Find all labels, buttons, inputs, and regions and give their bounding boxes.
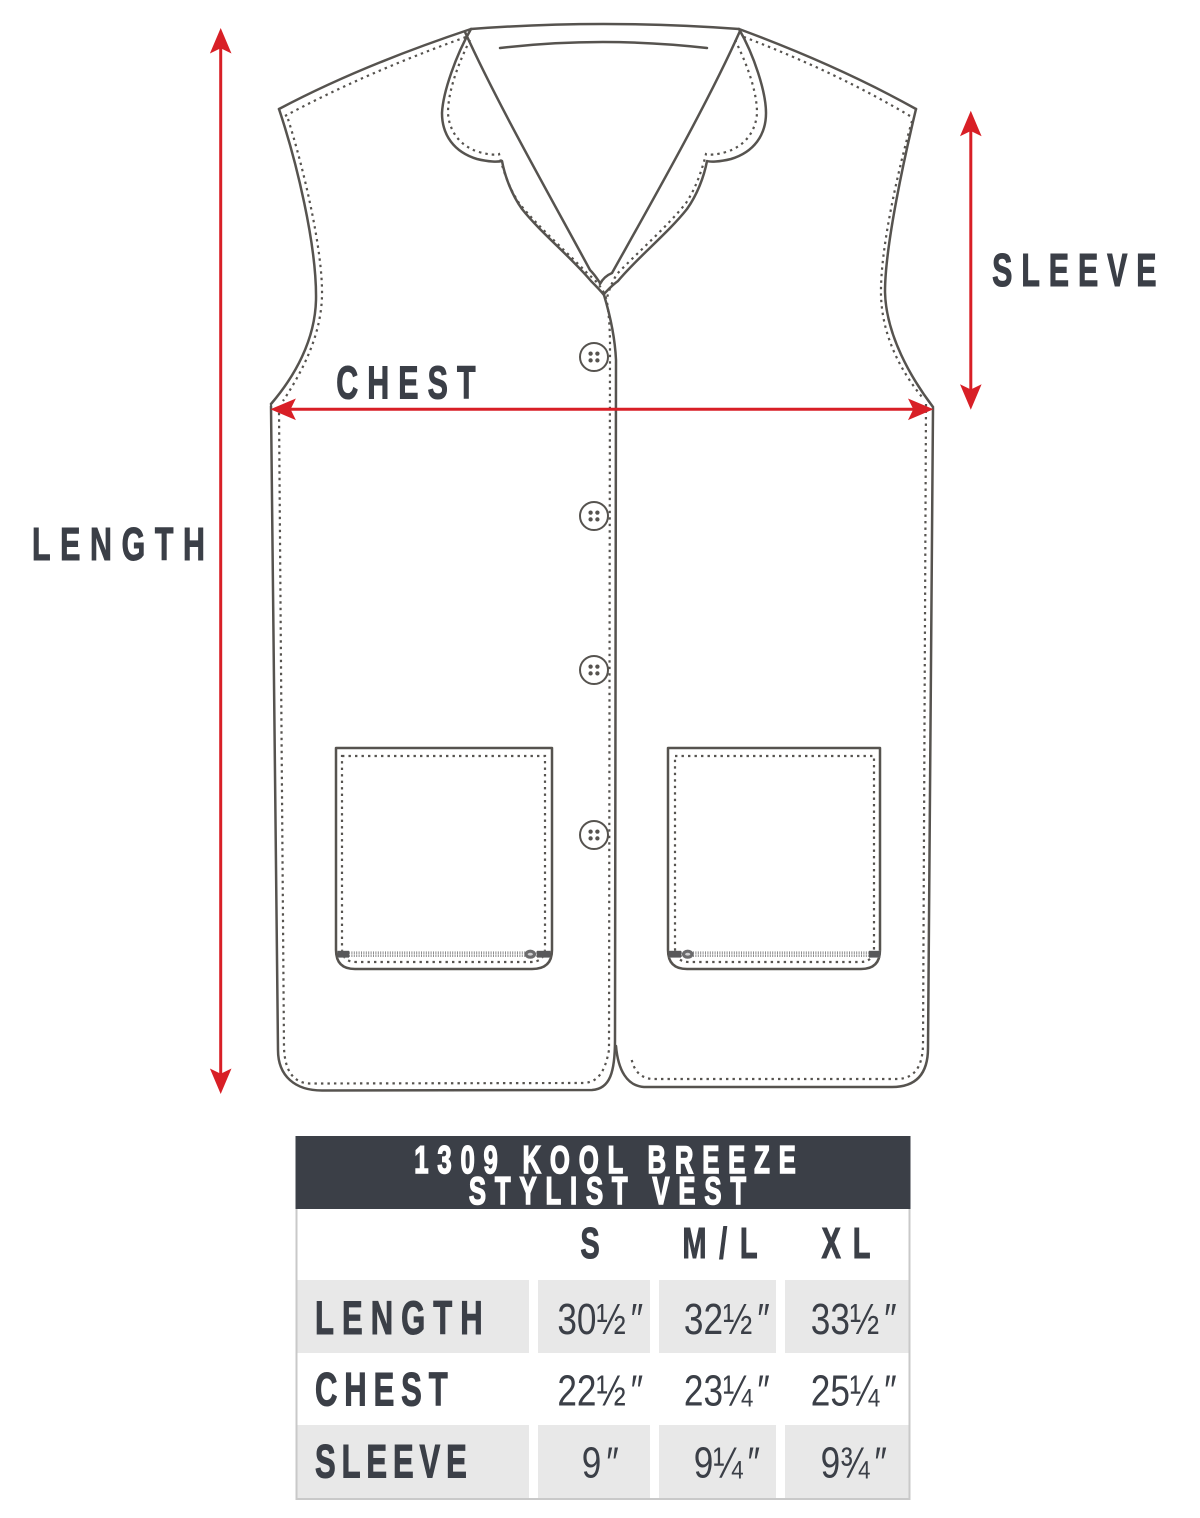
svg-text:25¼″: 25¼″ (811, 1367, 897, 1416)
svg-text:33½″: 33½″ (811, 1295, 897, 1344)
svg-text:30½″: 30½″ (557, 1295, 643, 1344)
svg-text:22½″: 22½″ (557, 1367, 643, 1416)
svg-text:9″: 9″ (582, 1439, 619, 1488)
svg-text:32½″: 32½″ (684, 1295, 770, 1344)
svg-text:9¼″: 9¼″ (694, 1439, 760, 1488)
svg-text:9¾″: 9¾″ (821, 1439, 887, 1488)
svg-text:M/L: M/L (682, 1218, 757, 1268)
svg-text:23¼″: 23¼″ (684, 1367, 770, 1416)
svg-text:S: S (580, 1218, 599, 1268)
